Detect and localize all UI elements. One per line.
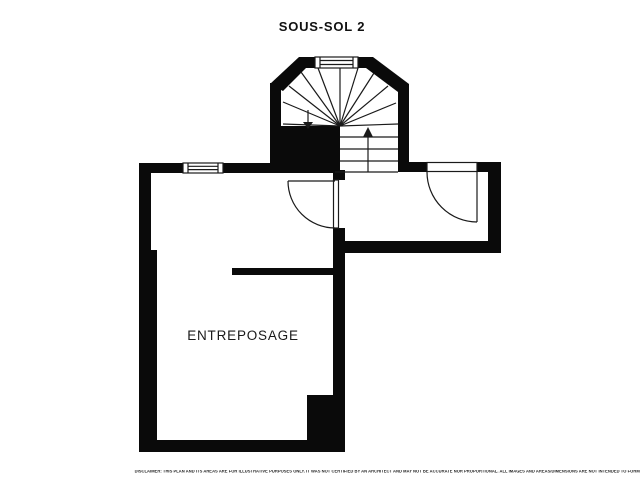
wall-partition <box>232 268 337 275</box>
door-vestibule <box>427 163 477 223</box>
wall-main-right <box>333 228 345 440</box>
plan-title: SOUS-SOL 2 <box>279 19 366 34</box>
wall-vestibule-right <box>488 162 501 253</box>
door-storage-room <box>288 180 339 228</box>
floorplan-page: SOUS-SOL 2 <box>0 0 640 480</box>
room-label-entreposage: ENTREPOSAGE <box>187 328 299 343</box>
wall-stair-left <box>270 83 281 132</box>
wall-vestibule-top-left <box>409 162 427 172</box>
wall-main-left-upper <box>139 163 151 252</box>
wall-vestibule-bottom <box>333 241 501 253</box>
walls <box>139 57 501 452</box>
floorplan-svg: SOUS-SOL 2 <box>0 0 640 480</box>
wall-main-left-lower <box>139 250 157 452</box>
wall-vestibule-top-right <box>477 162 488 172</box>
stair-treads <box>335 137 398 172</box>
disclaimer: DISCLAIMER: THIS PLAN AND ITS AREAS ARE … <box>0 461 640 479</box>
disclaimer-text: DISCLAIMER: THIS PLAN AND ITS AREAS ARE … <box>135 470 640 474</box>
wall-stair-right <box>398 84 409 172</box>
window-stairwell <box>315 57 358 68</box>
window-main-room <box>183 163 223 173</box>
wall-stair-mass <box>270 126 340 173</box>
